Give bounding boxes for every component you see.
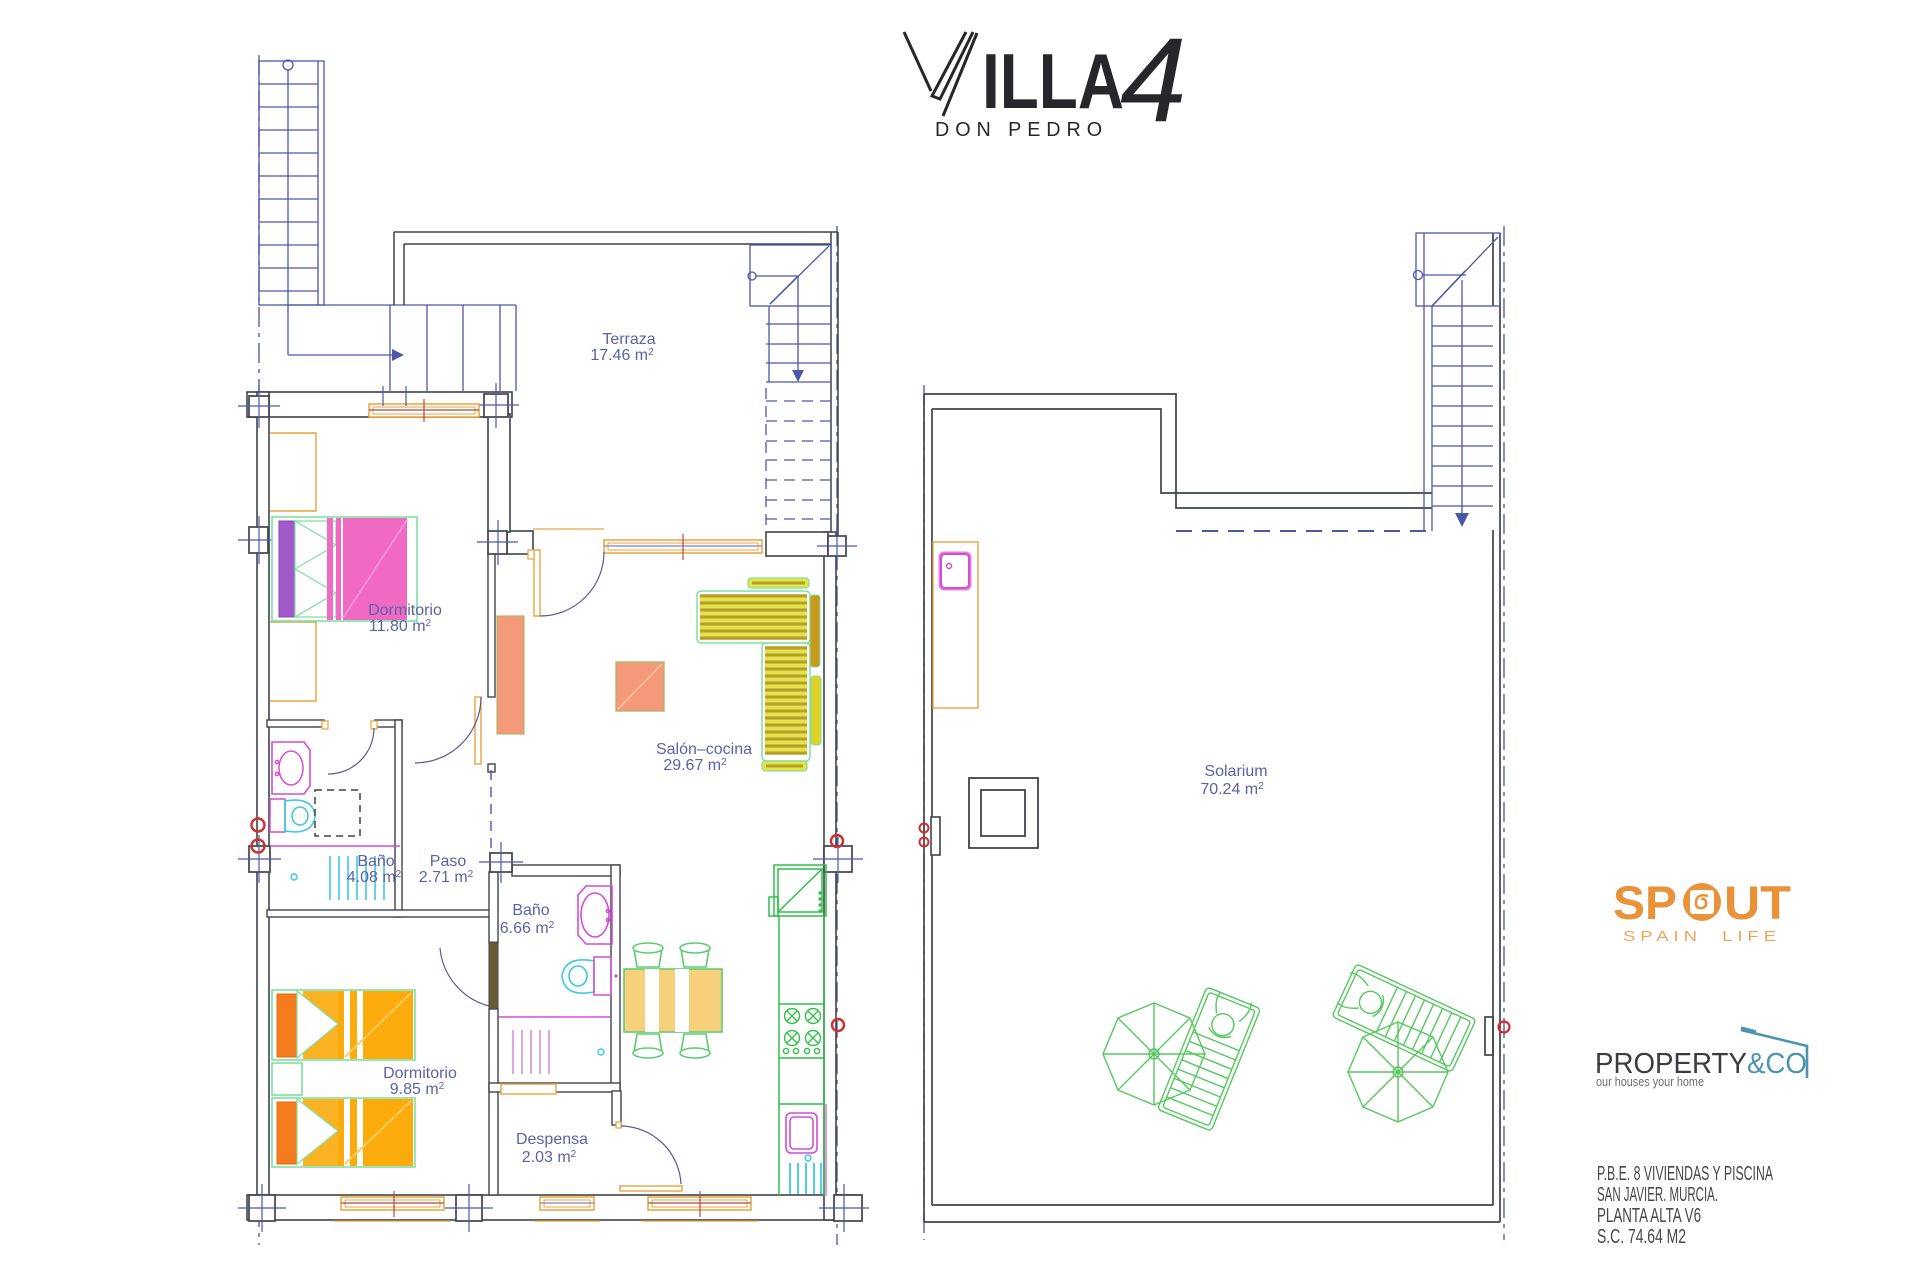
svg-text:our houses your home: our houses your home <box>1596 1074 1704 1089</box>
svg-text:29.67 m2: 29.67 m2 <box>663 757 727 774</box>
svg-text:2.71 m2: 2.71 m2 <box>419 869 474 886</box>
svg-text:ILLA: ILLA <box>982 37 1124 125</box>
svg-text:9.85 m2: 9.85 m2 <box>390 1081 445 1098</box>
svg-text:SAN JAVIER. MURCIA.: SAN JAVIER. MURCIA. <box>1597 1184 1718 1206</box>
svg-text:Baño: Baño <box>512 902 549 919</box>
svg-text:11.80 m2: 11.80 m2 <box>369 618 432 635</box>
svg-text:Terraza: Terraza <box>602 331 655 348</box>
svg-text:DON PEDRO: DON PEDRO <box>935 119 1108 141</box>
svg-text:4: 4 <box>1120 13 1187 147</box>
svg-text:Dormitorio: Dormitorio <box>368 602 442 619</box>
svg-text:17.46 m2: 17.46 m2 <box>590 347 654 364</box>
svg-text:Salón–cocina: Salón–cocina <box>656 741 752 758</box>
svg-text:Dormitorio: Dormitorio <box>383 1065 457 1082</box>
svg-text:4.08 m2: 4.08 m2 <box>347 869 402 886</box>
svg-text:Despensa: Despensa <box>516 1131 588 1148</box>
svg-text:2.03 m2: 2.03 m2 <box>522 1149 577 1166</box>
svg-text:Paso: Paso <box>430 853 467 870</box>
svg-text:SPAIN LIFE: SPAIN LIFE <box>1623 928 1781 945</box>
svg-text:Baño: Baño <box>357 853 394 870</box>
svg-text:S.C. 74.64 M2: S.C. 74.64 M2 <box>1597 1226 1686 1248</box>
svg-text:PLANTA ALTA V6: PLANTA ALTA V6 <box>1597 1205 1701 1227</box>
svg-text:Solarium: Solarium <box>1204 763 1267 780</box>
svg-text:70.24 m2: 70.24 m2 <box>1200 781 1264 798</box>
svg-text:UT: UT <box>1724 876 1791 929</box>
svg-text:6.66 m2: 6.66 m2 <box>500 920 555 937</box>
svg-text:SP: SP <box>1613 876 1677 929</box>
svg-text:P.B.E. 8 VIVIENDAS Y PISCINA: P.B.E. 8 VIVIENDAS Y PISCINA <box>1597 1163 1773 1185</box>
